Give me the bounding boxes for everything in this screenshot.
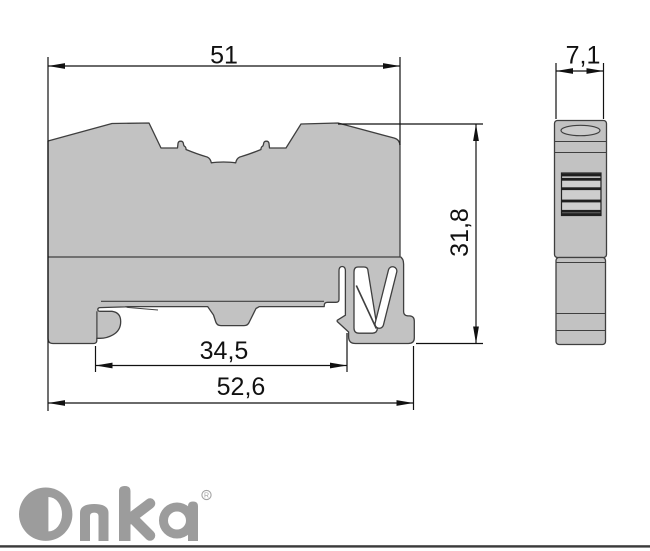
svg-text:31,8: 31,8 [446,208,474,257]
svg-text:51: 51 [210,42,238,70]
svg-text:R: R [204,493,209,500]
svg-text:7,1: 7,1 [566,42,601,70]
svg-text:52,6: 52,6 [217,373,266,401]
svg-text:34,5: 34,5 [200,337,249,365]
